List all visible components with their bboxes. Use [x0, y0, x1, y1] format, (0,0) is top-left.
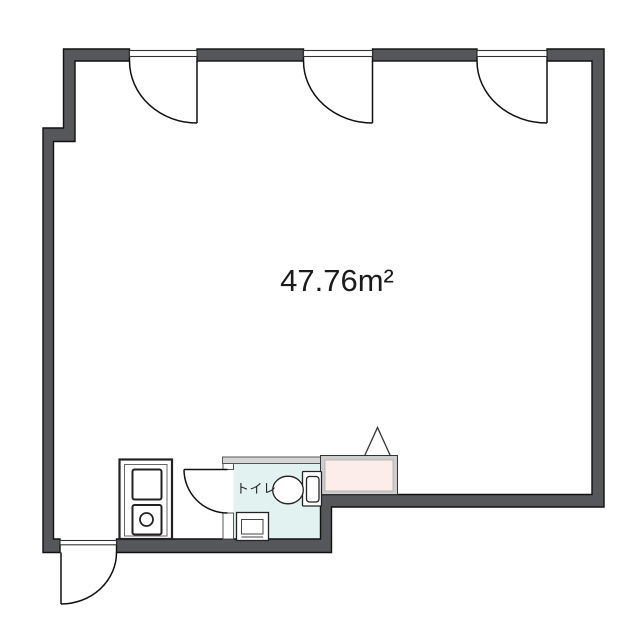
toilet-tank-lid	[307, 477, 320, 503]
floor-plan-canvas: 47.76m² トイレ	[0, 0, 640, 640]
toilet-partition-top	[223, 457, 322, 464]
toilet-bowl	[273, 476, 304, 504]
toilet-room-label: トイレ	[236, 482, 277, 497]
door2-lintel	[304, 51, 373, 57]
wall-top-segment-b	[197, 49, 304, 61]
wall-top-segment-c	[373, 49, 478, 61]
vanity-drain-circle	[140, 513, 153, 526]
toilet-partition-left-lower	[223, 513, 234, 539]
door3-lintel	[477, 51, 547, 57]
area-label: 47.76m²	[280, 263, 394, 298]
entrance-threshold	[60, 541, 117, 545]
toilet-partition-left-upper	[223, 464, 234, 470]
floor-plan-page: 47.76m² トイレ	[0, 0, 640, 640]
counter-top	[325, 460, 393, 491]
door1-lintel	[130, 51, 198, 57]
vanity-upper-compartment	[133, 470, 162, 500]
